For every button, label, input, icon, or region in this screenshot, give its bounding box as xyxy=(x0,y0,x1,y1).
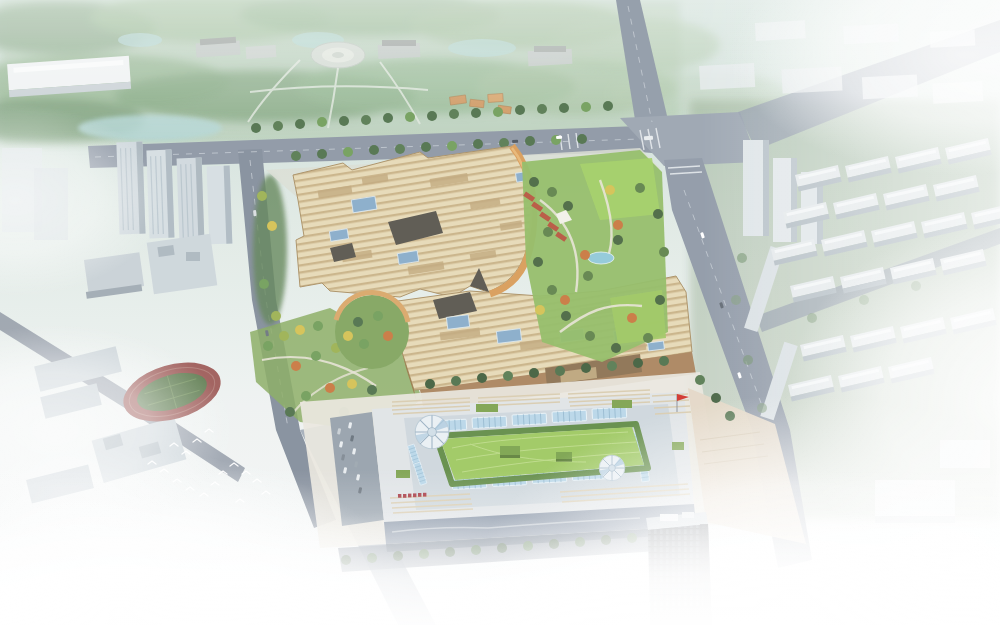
fog-layers xyxy=(0,0,1000,625)
rendering-canvas xyxy=(0,0,1000,625)
aerial-rendering-svg xyxy=(0,0,1000,625)
fog-bottom-band xyxy=(0,470,1000,625)
